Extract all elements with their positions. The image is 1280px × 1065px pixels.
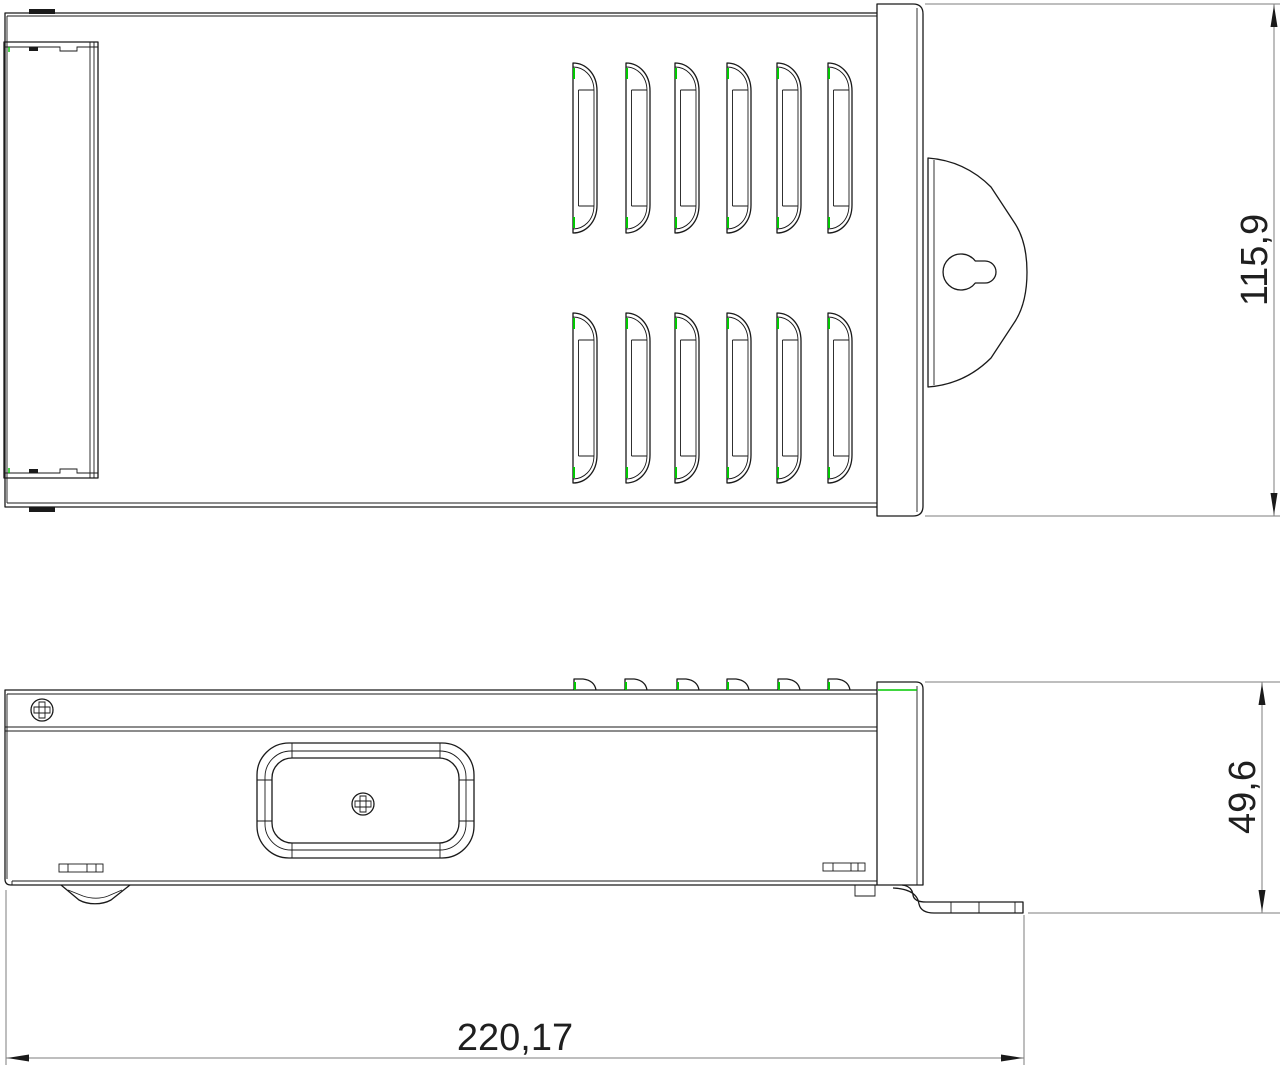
body-inner-line <box>7 16 877 503</box>
side-view <box>5 679 1023 913</box>
edge-tab-bottom <box>29 507 55 512</box>
mounting-foot <box>855 885 1023 913</box>
arrow-up-icon <box>1271 5 1278 27</box>
arrow-down-icon <box>1271 493 1278 515</box>
keyhole-slot-icon <box>943 254 996 290</box>
side-body-inner-line <box>7 694 877 885</box>
arrow-up-icon <box>1259 683 1266 705</box>
dim-label-side-view-height: 49,6 <box>1222 760 1264 834</box>
vent-bumps <box>574 679 850 690</box>
dim-label-top-view-width: 115,9 <box>1234 214 1276 306</box>
arrow-right-icon <box>1001 1055 1023 1062</box>
dimensions: 115,9 49,6 220,17 <box>6 4 1280 1065</box>
access-cutout <box>257 743 474 858</box>
corner-screw <box>31 699 53 721</box>
side-body-outline <box>5 690 877 885</box>
mounting-bracket <box>928 158 1027 387</box>
technical-drawing-canvas: 115,9 49,6 220,17 <box>0 0 1280 1065</box>
dim-label-overall-length: 220,17 <box>457 1017 573 1059</box>
vent-louvers-top-row <box>573 63 852 233</box>
edge-tab-top <box>29 9 55 14</box>
end-cap <box>877 4 923 516</box>
ext-lines-top-view <box>925 4 1280 516</box>
side-end-cap <box>877 682 923 885</box>
under-tab <box>855 885 875 896</box>
top-band-lines <box>5 727 877 731</box>
arrow-down-icon <box>1259 890 1266 912</box>
bottom-grille-left <box>59 864 103 872</box>
bottom-grille-right <box>823 863 865 871</box>
center-screw <box>352 793 374 815</box>
terminal-cover <box>4 42 98 478</box>
arrow-left-icon <box>7 1055 29 1062</box>
vent-louvers-bottom-row <box>573 313 852 483</box>
top-view <box>4 4 1027 516</box>
body-outline <box>5 13 877 507</box>
foot-bump <box>61 885 130 904</box>
drawing-svg: 115,9 49,6 220,17 <box>0 0 1280 1065</box>
